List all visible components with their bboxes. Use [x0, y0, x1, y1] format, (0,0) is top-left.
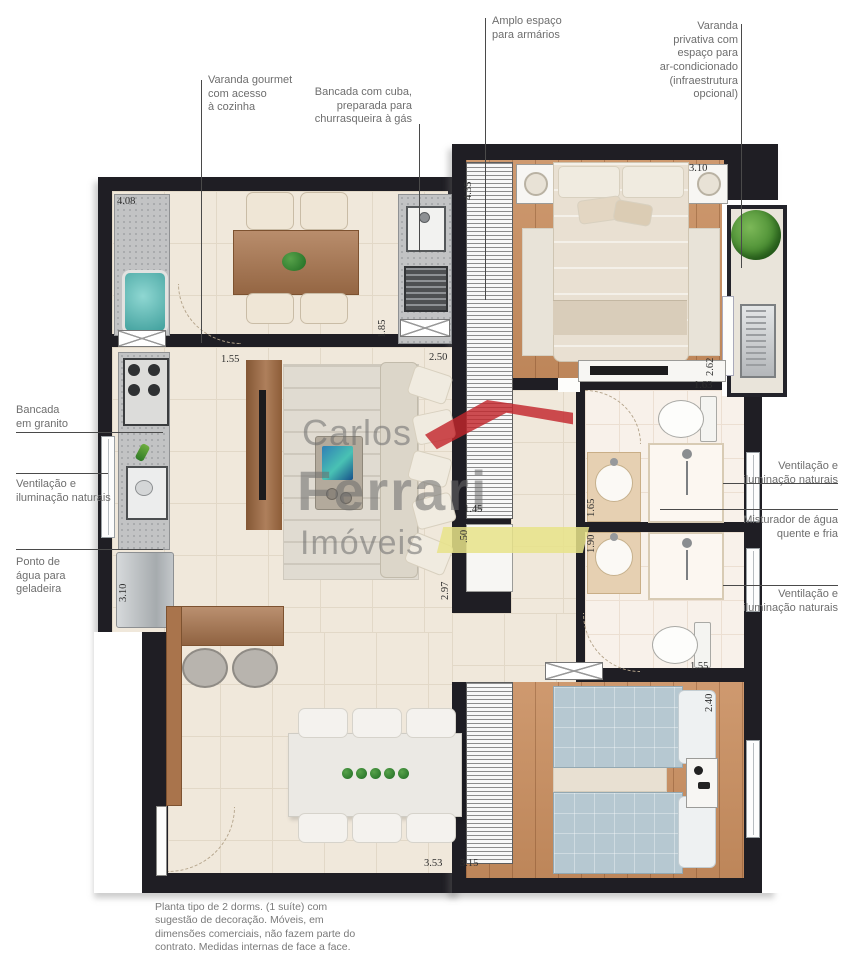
- callout-ponto-agua: Ponto de água para geladeira: [16, 556, 66, 597]
- closet-hatch-bedroom2: [466, 682, 513, 864]
- dim-label: 1.45: [464, 504, 482, 515]
- leader-line: [660, 509, 838, 510]
- lamp-icon: [524, 172, 548, 196]
- dim-label: 3.10: [689, 163, 707, 174]
- leader-line: [741, 24, 742, 268]
- cooktop-burner: [148, 364, 160, 376]
- chair: [246, 192, 294, 230]
- suite-tv: [590, 366, 668, 375]
- leader-line: [16, 549, 163, 550]
- leader-line: [485, 18, 486, 300]
- dining-chair: [406, 708, 456, 738]
- gas-grill: [404, 266, 448, 312]
- dining-chair: [298, 708, 348, 738]
- dining-chair: [298, 813, 348, 843]
- watermark-line1: Carlos: [302, 412, 412, 454]
- single-bed-1: [553, 686, 683, 768]
- chair: [300, 192, 348, 230]
- leader-line: [723, 585, 838, 586]
- cooktop-burner: [128, 364, 140, 376]
- plate: [342, 768, 353, 779]
- watermark-line3: Imóveis: [300, 524, 424, 563]
- vent-sill: [118, 330, 166, 347]
- dim-label: 1.55: [221, 354, 239, 365]
- stool: [232, 648, 278, 688]
- callout-misturador: Misturador de água quente e fria: [743, 514, 838, 541]
- leader-line: [201, 80, 202, 343]
- chair: [246, 293, 294, 324]
- breakfast-bar: [166, 606, 284, 646]
- dim-label: 2.50: [429, 352, 447, 363]
- dim-label: 3.53: [424, 858, 442, 869]
- lamp-icon: [697, 172, 721, 196]
- leader-line: [16, 432, 163, 433]
- callout-varanda-gourmet: Varanda gourmet com acesso à cozinha: [208, 74, 292, 115]
- dim-label: 1.63: [694, 380, 712, 391]
- tv-screen: [259, 390, 266, 500]
- nightstand-decor: [698, 782, 710, 789]
- vent-sill: [545, 662, 603, 680]
- callout-bancada-granito: Bancada em granito: [16, 404, 68, 431]
- plant-icon: [731, 210, 781, 260]
- dim-label: 4.35: [463, 182, 474, 200]
- shower-mixer: [686, 550, 688, 580]
- shower-head-icon: [682, 449, 692, 459]
- shower-mixer: [686, 461, 688, 495]
- dim-label: 1.65: [586, 499, 597, 517]
- kitchen-sink-basin: [135, 480, 153, 496]
- watermark-line2: Ferrari: [297, 458, 488, 523]
- vanity-sink: [595, 464, 633, 502]
- bed-pillow: [558, 166, 620, 198]
- table-centerpiece: [282, 252, 306, 271]
- plate: [398, 768, 409, 779]
- laundry-tub: [122, 270, 168, 334]
- vanity-sink: [595, 538, 633, 576]
- shower-head-icon: [682, 538, 692, 548]
- callout-bancada-cuba: Bancada com cuba, preparada para churras…: [315, 86, 412, 127]
- dining-chair: [406, 813, 456, 843]
- dining-chair: [352, 813, 402, 843]
- ac-unit-slats: [746, 310, 766, 368]
- plate: [384, 768, 395, 779]
- cooktop-burner: [148, 384, 160, 396]
- leader-line: [419, 124, 420, 252]
- faucet-icon: [610, 458, 618, 466]
- bedroom2-rug: [553, 764, 667, 792]
- suite-doorway: [558, 378, 580, 392]
- floor-plan-page: Carlos Ferrari Imóveis 4.08 1.85 1.55 2.…: [0, 0, 856, 960]
- dim-label: 2.97: [440, 582, 451, 600]
- wall-notch-bottom-left: [94, 632, 142, 893]
- toilet: [658, 400, 704, 438]
- callout-amplo-espaco: Amplo espaço para armários: [492, 15, 562, 42]
- dim-label: 1.55: [690, 661, 708, 672]
- bedroom2-window: [746, 740, 760, 838]
- bed-throw: [553, 300, 687, 335]
- dim-label: 3.15: [460, 858, 478, 869]
- dim-label: .50: [459, 530, 470, 543]
- single-bed-2: [553, 792, 683, 874]
- dining-chair: [352, 708, 402, 738]
- plate: [356, 768, 367, 779]
- callout-ventilacao-esq: Ventilação e iluminação naturais: [16, 478, 111, 505]
- leader-line: [16, 473, 108, 474]
- disclaimer-text: Planta tipo de 2 dorms. (1 suíte) com su…: [155, 901, 435, 955]
- breakfast-bar-leg: [166, 606, 182, 806]
- dim-label: 4.08: [117, 196, 135, 207]
- dim-label: 2.40: [704, 694, 715, 712]
- bed-pillow: [622, 166, 684, 198]
- leader-line: [723, 483, 838, 484]
- stool: [182, 648, 228, 688]
- dim-label: 3.10: [118, 584, 129, 602]
- callout-varanda-privativa: Varanda privativa com espaço para ar-con…: [660, 20, 738, 102]
- faucet-icon: [610, 533, 618, 541]
- plate: [370, 768, 381, 779]
- toilet: [652, 626, 698, 664]
- nightstand-decor: [694, 766, 703, 775]
- cooktop-burner: [128, 384, 140, 396]
- vent-sill: [400, 319, 450, 337]
- barbecue-sink-faucet: [419, 212, 430, 223]
- dim-label: 2.62: [705, 358, 716, 376]
- dim-label: 1.85: [377, 320, 388, 338]
- callout-ventilacao-dir-2: Ventilação e iluminação naturais: [743, 588, 838, 615]
- dim-label: 1.90: [586, 535, 597, 553]
- entry-door-leaf: [156, 806, 167, 876]
- chair: [300, 293, 348, 324]
